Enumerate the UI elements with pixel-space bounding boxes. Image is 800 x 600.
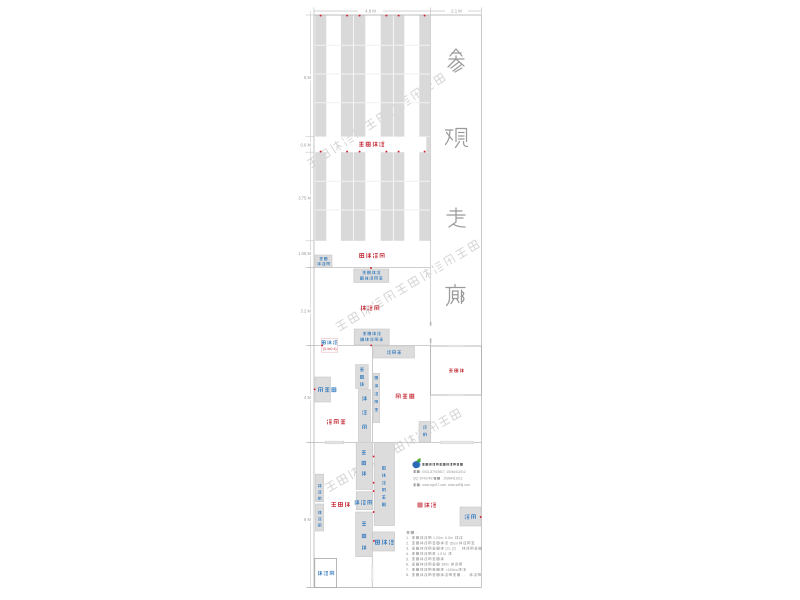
svg-text:QQ: 87437467: QQ: 87437467 (413, 477, 434, 481)
svg-text:0.6 M: 0.6 M (301, 142, 312, 147)
svg-text:1.5 M: 1.5 M (437, 552, 446, 556)
svg-text:(3), (2): (3), (2) (445, 547, 456, 551)
svg-text:5.: 5. (406, 557, 409, 561)
svg-text:7.: 7. (406, 568, 409, 572)
svg-text:3.75 M: 3.75 M (298, 196, 311, 201)
svg-text:1.25m, 6.5m: 1.25m, 6.5m (433, 536, 453, 540)
svg-text:, .: , . (462, 573, 465, 577)
svg-text:380v: 380v (441, 563, 449, 567)
svg-text:4.: 4. (406, 552, 409, 556)
svg-text:1.: 1. (406, 536, 409, 540)
svg-text:: 15064411912: : 15064411912 (442, 477, 463, 481)
svg-text:: 0531-87919817, 15064411912: : 0531-87919817, 15064411912 (421, 470, 466, 474)
svg-text:>150kw: >150kw (445, 568, 458, 572)
svg-text:: www.sypt17.com, www.sd96j.co: : www.sypt17.com, www.sd96j.com (421, 483, 471, 487)
svg-text::: : (416, 530, 417, 535)
svg-text:1.05 M: 1.05 M (298, 251, 311, 256)
svg-text:35cm: 35cm (449, 541, 458, 545)
svg-text:3.: 3. (406, 547, 409, 551)
svg-text:4.8 M: 4.8 M (365, 9, 376, 14)
svg-text:(0.4x0.4): (0.4x0.4) (323, 347, 337, 351)
svg-text:5 M: 5 M (304, 75, 311, 80)
svg-text:4 M: 4 M (304, 395, 311, 400)
svg-text:3.2 M: 3.2 M (301, 309, 312, 314)
svg-text:2.: 2. (406, 541, 409, 545)
svg-text:6 M: 6 M (304, 517, 311, 522)
svg-text:6.: 6. (406, 563, 409, 567)
svg-text:8.: 8. (406, 573, 409, 577)
svg-text:2.1 M: 2.1 M (451, 9, 462, 14)
